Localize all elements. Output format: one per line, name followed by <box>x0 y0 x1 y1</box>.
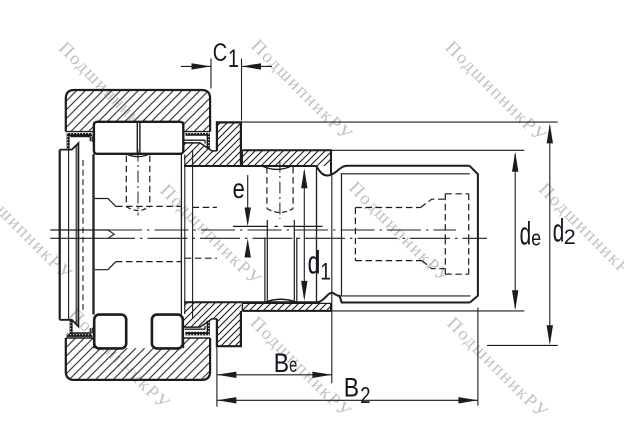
svg-text:1: 1 <box>320 257 331 285</box>
svg-text:e: e <box>531 227 541 251</box>
svg-text:C: C <box>213 39 227 67</box>
svg-text:2: 2 <box>360 383 370 408</box>
svg-text:e: e <box>233 173 245 204</box>
svg-text:B: B <box>344 373 359 403</box>
svg-text:d: d <box>308 245 321 281</box>
svg-text:d: d <box>520 216 532 252</box>
svg-text:1: 1 <box>228 45 239 73</box>
svg-text:2: 2 <box>564 225 576 249</box>
svg-text:e: e <box>289 353 297 376</box>
svg-text:d: d <box>553 213 565 249</box>
svg-text:B: B <box>274 348 289 378</box>
